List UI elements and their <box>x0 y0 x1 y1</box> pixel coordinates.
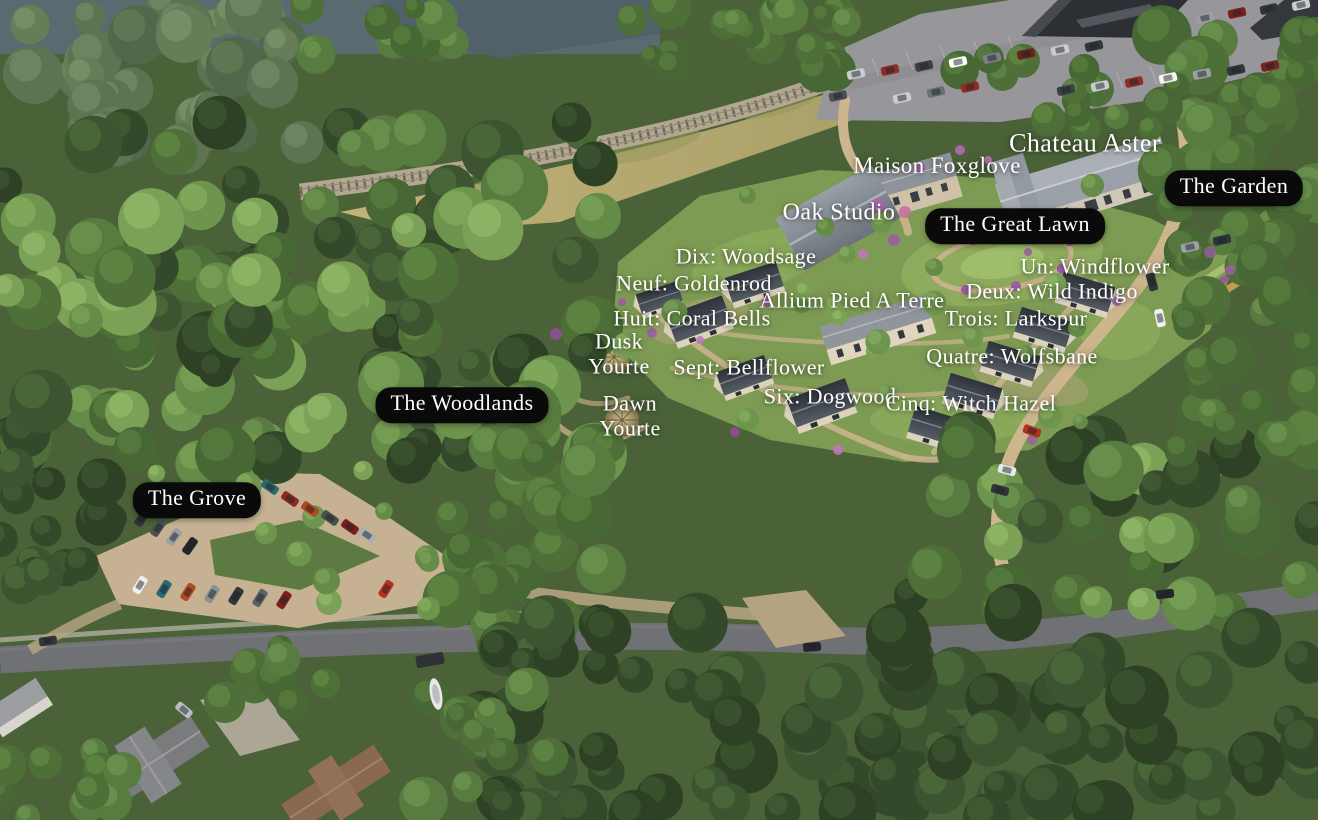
place-label-trois-larkspur: Trois: Larkspur <box>945 307 1088 332</box>
place-label-quatre-wolfsbane: Quatre: Wolfsbane <box>926 345 1097 370</box>
place-label-dix-woodsage: Dix: Woodsage <box>676 245 817 270</box>
place-label-un-windflower: Un: Windflower <box>1020 255 1169 280</box>
place-label-cinq-witch-hazel: Cinq: Witch Hazel <box>886 392 1056 417</box>
label-line: Dusk <box>588 329 649 354</box>
place-label-sept-bellflower: Sept: Bellflower <box>673 356 824 381</box>
place-label-maison-foxglove: Maison Foxglove <box>853 153 1021 179</box>
area-label-the-woodlands: The Woodlands <box>376 387 549 423</box>
label-line: Yourte <box>599 416 660 441</box>
label-line: Dawn <box>599 391 660 416</box>
place-label-dawn-yourte: Dawn Yourte <box>599 391 660 440</box>
place-label-chateau-aster: Chateau Aster <box>1009 128 1161 157</box>
label-line: Yourte <box>588 354 649 379</box>
area-label-the-grove: The Grove <box>133 482 261 518</box>
area-label-the-great-lawn: The Great Lawn <box>925 208 1105 244</box>
place-label-oak-studio: Oak Studio <box>783 200 896 227</box>
place-label-neuf-goldenrod: Neuf: Goldenrod <box>616 272 772 297</box>
place-label-dusk-yourte: Dusk Yourte <box>588 329 649 378</box>
place-label-allium-pied-a-terre: Allium Pied A Terre <box>760 289 945 314</box>
place-label-deux-wild-indigo: Deux: Wild Indigo <box>966 280 1138 305</box>
place-label-six-dogwood: Six: Dogwood <box>764 385 897 410</box>
area-label-the-garden: The Garden <box>1165 170 1303 206</box>
aerial-site-map: The Garden The Great Lawn The Woodlands … <box>0 0 1318 820</box>
